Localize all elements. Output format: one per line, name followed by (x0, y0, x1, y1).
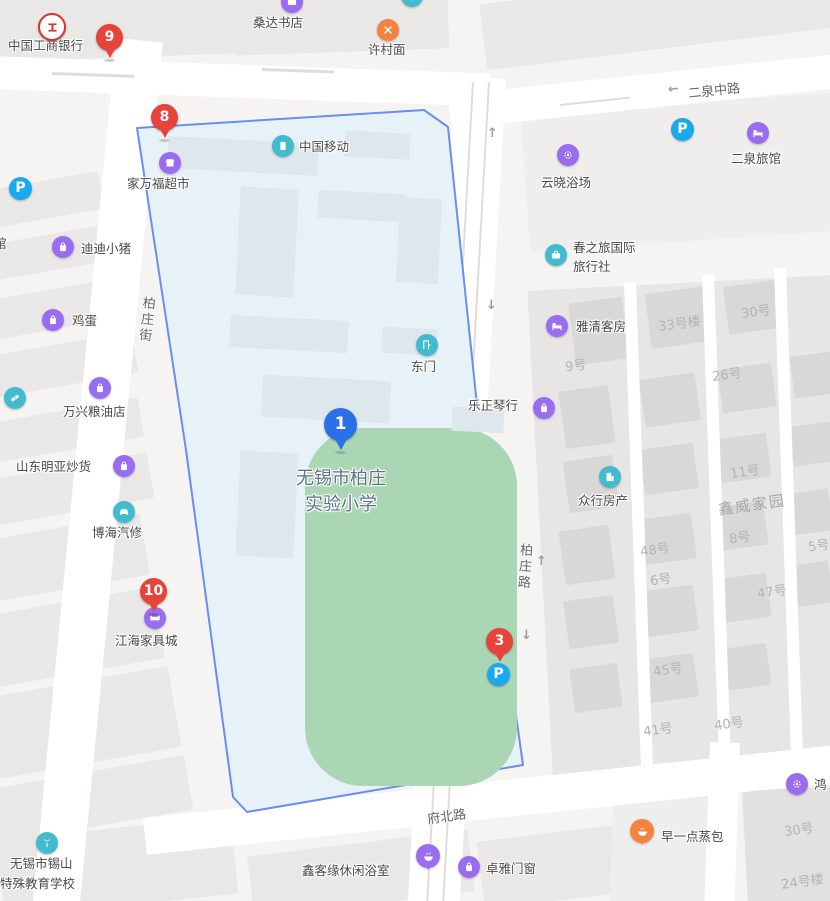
food-balloon-icon[interactable] (630, 819, 654, 843)
bldg-no-47: 47号 (756, 579, 788, 602)
marker-3-number: 3 (486, 628, 513, 655)
realty-icon[interactable] (599, 466, 621, 488)
bldg-no-5: 5号 (807, 534, 830, 556)
road-arrow-left: ← (667, 81, 679, 97)
road-label-baizhuang-road: 柏庄路 (512, 542, 534, 591)
marker-3[interactable]: 3 (486, 628, 513, 662)
poi-label-guan-partial[interactable]: 馆 (0, 236, 7, 251)
supermarket-icon[interactable] (159, 152, 181, 174)
marker-tail (335, 439, 347, 450)
auto-repair-icon[interactable] (113, 501, 135, 523)
school-name-line2[interactable]: 实验小学 (305, 490, 377, 516)
bldg-no-8: 8号 (728, 526, 752, 548)
shop-bag-icon[interactable] (89, 377, 111, 399)
marker-10-number: 10 (140, 578, 167, 605)
bldg-no-26: 26号 (711, 362, 743, 385)
bldg-no-6: 6号 (649, 568, 673, 590)
gate-icon[interactable] (416, 334, 438, 356)
marker-shadow (159, 139, 170, 142)
road-arrow-up: ↑ (487, 126, 498, 141)
poi-label-lezheng[interactable]: 乐正琴行 (468, 398, 518, 413)
poi-label-texiao-line2[interactable]: 特殊教育学校 (0, 876, 75, 891)
marker-9-number: 9 (96, 24, 123, 51)
marker-tail (149, 603, 159, 612)
poi-label-zhuoya[interactable]: 卓雅门窗 (486, 861, 536, 876)
marker-1-destination[interactable]: 1 (324, 408, 357, 454)
poi-label-jiawanfu[interactable]: 家万福超市 (127, 176, 190, 191)
poi-label-jianghai[interactable]: 江海家具城 (115, 633, 178, 648)
marker-8[interactable]: 8 (151, 104, 178, 142)
poi-label-xinkeyuan[interactable]: 鑫客缘休闲浴室 (302, 863, 390, 878)
poi-label-zaoyidian[interactable]: 早一点蒸包 (661, 829, 724, 844)
poi-label-east-gate[interactable]: 东门 (411, 359, 436, 374)
school-name-line1[interactable]: 无锡市柏庄 (296, 464, 386, 490)
guesthouse-icon[interactable] (546, 315, 568, 337)
mobile-carrier-icon[interactable] (272, 135, 294, 157)
poi-label-erquan-hotel[interactable]: 二泉旅馆 (731, 151, 781, 166)
parking-icon[interactable]: P (487, 663, 510, 686)
bldg-no-9: 9号 (564, 354, 588, 376)
shop-bag-icon[interactable] (533, 397, 555, 419)
travel-agency-icon[interactable] (545, 244, 567, 266)
poi-label-china-mobile[interactable]: 中国移动 (299, 139, 349, 154)
poi-label-texiao-line1[interactable]: 无锡市锡山 (10, 856, 73, 871)
shop-bag-icon[interactable] (42, 309, 64, 331)
marker-1-number: 1 (324, 408, 357, 441)
bath-icon[interactable] (557, 144, 579, 166)
marker-shadow (148, 613, 159, 616)
bath-icon[interactable] (786, 773, 808, 795)
school-area-overlay (0, 0, 830, 901)
bldg-no-41: 41号 (642, 717, 674, 740)
bath-balloon-icon[interactable] (416, 844, 440, 868)
restaurant-icon[interactable] (377, 19, 399, 41)
bldg-no-30: 30号 (740, 299, 772, 322)
bldg-no-30b: 30号 (783, 817, 815, 840)
poi-label-hong-partial[interactable]: 鸿 (814, 777, 827, 792)
shop-bag-icon[interactable] (458, 856, 480, 878)
marker-9[interactable]: 9 (96, 24, 123, 62)
marker-tail (105, 49, 115, 58)
poi-label-chunzhilv-line1[interactable]: 春之旅国际 (573, 240, 636, 255)
marker-10[interactable]: 10 (140, 578, 167, 616)
poi-label-didi[interactable]: 迪迪小猪 (81, 241, 131, 256)
parking-icon[interactable]: P (671, 118, 694, 141)
poi-label-yaqing[interactable]: 雅清客房 (576, 319, 626, 334)
road-arrow-down: ↓ (486, 298, 497, 313)
shop-bag-icon[interactable] (52, 236, 74, 258)
marker-shadow (335, 451, 346, 454)
poi-label-sangda[interactable]: 桑达书店 (253, 15, 303, 30)
shop-bag-icon[interactable] (113, 455, 135, 477)
map-canvas[interactable]: 二泉中路 ← 柏庄街 柏庄路 府北路 ↑ ↓ ↑ ↓ 9号 33号楼 30号 2… (0, 0, 830, 901)
marker-shadow (104, 59, 115, 62)
pharmacy-icon[interactable] (4, 387, 26, 409)
poi-label-shandong[interactable]: 山东明亚炒货 (16, 459, 91, 474)
poi-label-chunzhilv-line2[interactable]: 旅行社 (573, 259, 611, 274)
poi-label-bohai[interactable]: 博海汽修 (92, 525, 142, 540)
parking-icon[interactable]: P (9, 177, 32, 200)
marker-tail (160, 129, 170, 138)
bldg-no-40: 40号 (713, 711, 745, 734)
marker-8-number: 8 (151, 104, 178, 131)
hotel-icon[interactable] (747, 122, 769, 144)
poi-label-yunxiao[interactable]: 云晓浴场 (541, 175, 591, 190)
bldg-no-11: 11号 (729, 459, 761, 482)
bldg-no-45: 45号 (652, 657, 684, 680)
poi-label-icbc[interactable]: 中国工商银行 (8, 38, 83, 53)
road-arrow-up: ↑ (536, 554, 547, 569)
poi-label-xucun[interactable]: 许村面 (368, 42, 406, 57)
poi-label-wanxing[interactable]: 万兴粮油店 (63, 404, 126, 419)
poi-label-egg[interactable]: 鸡蛋 (72, 313, 97, 328)
marker-tail (495, 653, 505, 662)
bldg-no-48: 48号 (639, 537, 671, 560)
bank-icon[interactable] (38, 13, 66, 41)
poi-label-zhongxing[interactable]: 众行房产 (578, 493, 628, 508)
road-arrow-down: ↓ (521, 628, 532, 643)
school-sprout-icon[interactable] (36, 832, 58, 854)
